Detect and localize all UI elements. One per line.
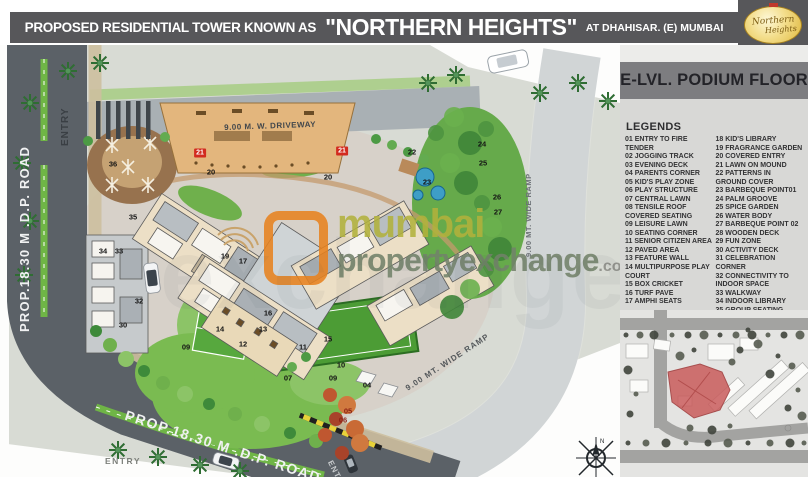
covered-entry	[160, 103, 355, 173]
plan-marker-30: 30	[119, 321, 127, 329]
plan-marker-21: 21	[194, 149, 206, 158]
legends-heading: LEGENDS	[626, 121, 803, 133]
project-name: "NORTHERN HEIGHTS"	[325, 14, 577, 41]
plan-marker-09: 09	[329, 374, 337, 382]
entry-label-top: ENTRY	[60, 107, 71, 146]
plan-marker-20: 20	[324, 173, 332, 181]
legend-column-1: 01 ENTRY TO FIRE TENDER02 JOGGING TRACK0…	[625, 136, 713, 324]
plan-marker-34: 34	[99, 247, 107, 255]
legend-item: 30 ACTIVITY DECK	[716, 247, 804, 256]
ramp-label-vertical: 9.00 MT. WIDE RAMP	[524, 173, 533, 257]
entry-label-bottom-left: ENTRY	[105, 456, 141, 466]
legend-column-2: 18 KID'S LIBRARY19 FRAGRANCE GARDEN20 CO…	[716, 136, 804, 324]
plan-marker-24: 24	[478, 140, 486, 148]
legend-item: 28 WOODEN DECK	[716, 230, 804, 239]
title-location: AT DHAHISAR. (E) MUMBAI	[586, 22, 723, 34]
legend-item: 10 SEATING CORNER	[625, 230, 713, 239]
plan-marker-11: 11	[299, 343, 307, 351]
compass-north-label: N	[600, 439, 604, 445]
plan-marker-32: 32	[135, 297, 143, 305]
key-plan-map	[620, 310, 808, 477]
legend-item: 27 BARBEQUE POINT 02	[716, 221, 804, 230]
legend-item: 13 FEATURE WALL	[625, 255, 713, 264]
legend-item: 14 MULTIPURPOSE PLAY COURT	[625, 264, 713, 281]
plan-marker-33: 33	[115, 247, 123, 255]
plan-marker-05: 05	[344, 407, 352, 415]
plan-marker-25: 25	[479, 159, 487, 167]
plan-marker-22: 22	[408, 148, 416, 156]
plan-marker-14: 14	[216, 325, 224, 333]
legend-item: 32 CONNECTIVITY TO INDOOR SPACE	[716, 273, 804, 290]
floor-title-bar: E-LVL. PODIUM FLOOR	[620, 62, 808, 99]
brand-logo-block: Northern Heights	[738, 0, 808, 50]
plan-marker-06: 06	[339, 416, 347, 424]
legend-item: 15 BOX CRICKET	[625, 281, 713, 290]
plan-marker-26: 26	[493, 193, 501, 201]
northern-heights-logo: Northern Heights	[744, 6, 802, 44]
legend-panel: E-LVL. PODIUM FLOOR LEGENDS 01 ENTRY TO …	[620, 45, 808, 477]
plan-marker-27: 27	[494, 208, 502, 216]
legend-item: 34 INDOOR LIBRARY	[716, 298, 804, 307]
legend-item: 18 KID'S LIBRARY	[716, 136, 804, 145]
plan-marker-19: 19	[221, 252, 229, 260]
plan-marker-23: 23	[423, 178, 431, 186]
legend-item: 03 EVENING DECK	[625, 162, 713, 171]
floor-title: E-LVL. PODIUM FLOOR	[620, 71, 808, 90]
legend-item: 29 FUN ZONE	[716, 238, 804, 247]
legend-item: 16 TURF PAVE	[625, 290, 713, 299]
logo-text-line2: Heights	[765, 24, 797, 34]
legend-item: 31 CELEBRATION CORNER	[716, 255, 804, 272]
legend-item: 26 WATER BODY	[716, 213, 804, 222]
plan-marker-15: 15	[324, 335, 332, 343]
legend-item: 19 FRAGRANCE GARDEN	[716, 145, 804, 154]
legend-item: 01 ENTRY TO FIRE TENDER	[625, 136, 713, 153]
legend-item: 17 AMPHI SEATS	[625, 298, 713, 307]
logo-tick	[769, 3, 778, 7]
legend-item: 20 COVERED ENTRY	[716, 153, 804, 162]
brochure-page: PROPOSED RESIDENTIAL TOWER KNOWN AS "NOR…	[0, 0, 808, 477]
site-plan-drawing: N	[0, 45, 620, 477]
legend-item: 06 PLAY STRUCTURE	[625, 187, 713, 196]
legend-item: 23 BARBEQUE POINT01	[716, 187, 804, 196]
legend-item: 24 PALM GROOVE	[716, 196, 804, 205]
plan-marker-36: 36	[109, 160, 117, 168]
plan-marker-21: 21	[336, 147, 348, 156]
legend-item: 21 LAWN ON MOUND	[716, 162, 804, 171]
page-title-bar: PROPOSED RESIDENTIAL TOWER KNOWN AS "NOR…	[10, 12, 738, 43]
site-plan: N 36212021203534331917323016141312111509…	[0, 45, 620, 477]
plan-marker-20: 20	[207, 168, 215, 176]
legend-item: 33 WALKWAY	[716, 290, 804, 299]
legend-item: 22 PATTERNS IN GROUND COVER	[716, 170, 804, 187]
legend-item: 08 TENSILE ROOF COVERED SEATING	[625, 204, 713, 221]
plan-marker-35: 35	[129, 213, 137, 221]
plan-marker-17: 17	[239, 257, 247, 265]
legend-item: 12 PAVED AREA	[625, 247, 713, 256]
legend-item: 04 PARENTS CORNER	[625, 170, 713, 179]
legend-item: 05 KID'S PLAY ZONE	[625, 179, 713, 188]
plan-marker-12: 12	[239, 340, 247, 348]
plan-marker-07: 07	[284, 374, 292, 382]
plan-marker-04: 04	[363, 381, 371, 389]
legend-item: 07 CENTRAL LAWN	[625, 196, 713, 205]
plan-marker-09: 09	[182, 343, 190, 351]
legend-item: 09 LEISURE LAWN	[625, 221, 713, 230]
legend-list: LEGENDS 01 ENTRY TO FIRE TENDER02 JOGGIN…	[620, 99, 808, 310]
legend-item: 02 JOGGING TRACK	[625, 153, 713, 162]
plan-marker-10: 10	[337, 361, 345, 369]
title-prefix: PROPOSED RESIDENTIAL TOWER KNOWN AS	[25, 20, 317, 35]
plan-marker-16: 16	[264, 309, 272, 317]
road-label-left: PROP.18.30 M .D.P. ROAD	[17, 146, 32, 332]
plan-marker-13: 13	[259, 325, 267, 333]
legend-item: 11 SENIOR CITIZEN AREA	[625, 238, 713, 247]
legend-item: 25 SPICE GARDEN	[716, 204, 804, 213]
